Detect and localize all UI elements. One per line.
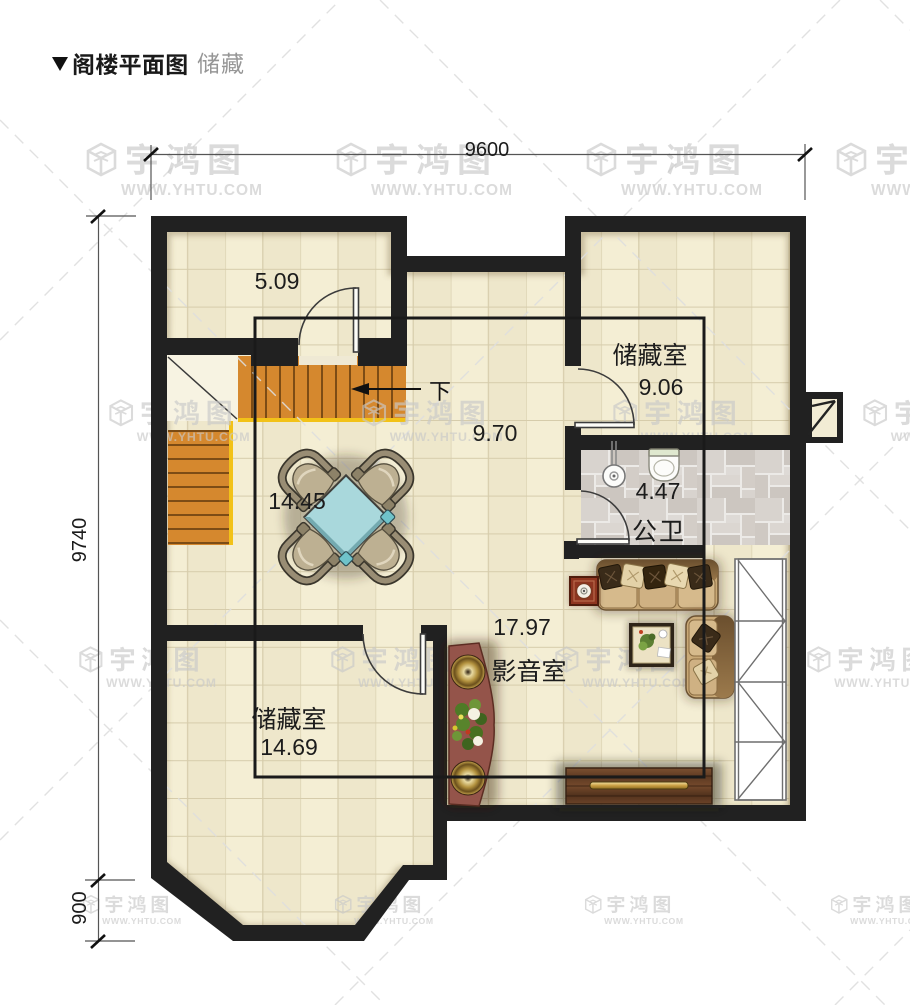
svg-text:900: 900: [69, 891, 91, 924]
svg-text:14.69: 14.69: [260, 734, 318, 760]
svg-text:WWW.YHTU.COM: WWW.YHTU.COM: [582, 676, 693, 690]
svg-text:WWW.YHTU.COM: WWW.YHTU.COM: [371, 182, 513, 199]
svg-text:9.70: 9.70: [473, 420, 518, 446]
svg-text:WWW.YHTU.COM: WWW.YHTU.COM: [621, 182, 763, 199]
svg-text:WWW.YHTU.COM: WWW.YHTU.COM: [871, 182, 910, 199]
svg-text:9740: 9740: [69, 518, 91, 563]
svg-text:9.06: 9.06: [639, 374, 684, 400]
svg-text:WWW.YHTU.COM: WWW.YHTU.COM: [834, 676, 910, 690]
svg-text:WWW.YHTU.COM: WWW.YHTU.COM: [121, 182, 263, 199]
svg-text:17.97: 17.97: [493, 614, 551, 640]
svg-text:WWW.YHTU.COM: WWW.YHTU.COM: [604, 916, 683, 926]
svg-text:WWW.YHTU.COM: WWW.YHTU.COM: [891, 430, 910, 444]
svg-text:14.45: 14.45: [268, 488, 326, 514]
svg-text:WWW.YHTU.COM: WWW.YHTU.COM: [102, 916, 181, 926]
svg-text:5.09: 5.09: [255, 268, 300, 294]
svg-text:9600: 9600: [465, 139, 510, 161]
svg-text:WWW.YHTU.COM: WWW.YHTU.COM: [850, 916, 910, 926]
svg-text:4.47: 4.47: [636, 478, 681, 504]
